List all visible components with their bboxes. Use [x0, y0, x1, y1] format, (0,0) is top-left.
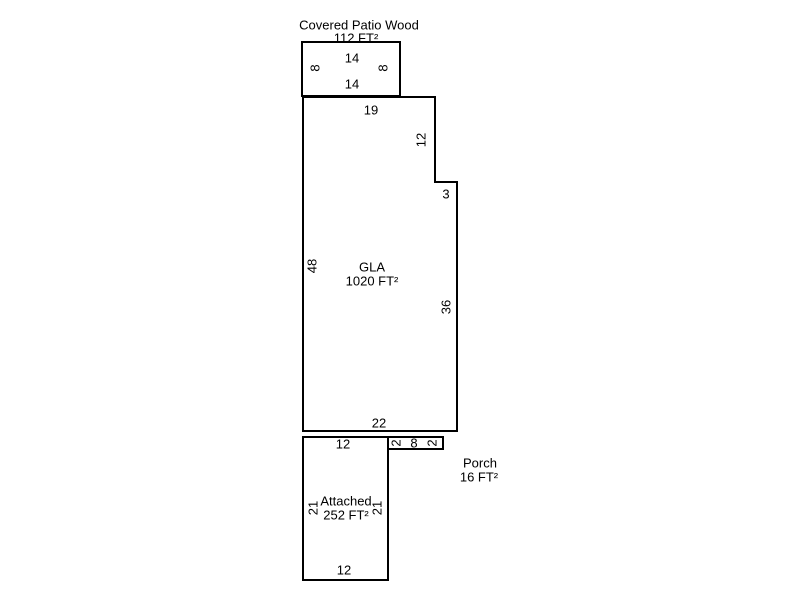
floorplan-outlines: [0, 0, 800, 600]
garage-title-label: Attached: [320, 495, 371, 508]
patio-right-dim: 8: [377, 64, 390, 71]
garage-right-dim: 21: [371, 501, 384, 515]
patio-bottom-dim: 14: [345, 78, 359, 91]
gla-right-upper-dim: 12: [415, 133, 428, 147]
patio-left-dim: 8: [309, 64, 322, 71]
garage-top-dim: 12: [336, 438, 350, 451]
porch-right-dim: 2: [426, 439, 439, 446]
porch-left-dim: 2: [390, 439, 403, 446]
garage-bottom-dim: 12: [337, 564, 351, 577]
patio-area-label: 112 FT²: [334, 32, 379, 45]
porch-title-label: Porch: [463, 457, 497, 470]
gla-title-label: GLA: [359, 261, 385, 274]
gla-area-label: 1020 FT²: [346, 275, 399, 288]
gla-step-dim: 3: [442, 188, 449, 201]
garage-area-label: 252 FT²: [323, 509, 369, 522]
gla-top-dim: 19: [364, 104, 378, 117]
porch-area-label: 16 FT²: [460, 471, 498, 484]
porch-width-dim: 8: [410, 437, 417, 450]
garage-left-dim: 21: [307, 501, 320, 515]
gla-right-lower-dim: 36: [440, 300, 453, 314]
gla-left-dim: 48: [306, 259, 319, 273]
gla-bottom-dim: 22: [372, 417, 386, 430]
floorplan-canvas: Covered Patio Wood 112 FT² 14 8 8 14 19 …: [0, 0, 800, 600]
patio-top-dim: 14: [345, 52, 359, 65]
